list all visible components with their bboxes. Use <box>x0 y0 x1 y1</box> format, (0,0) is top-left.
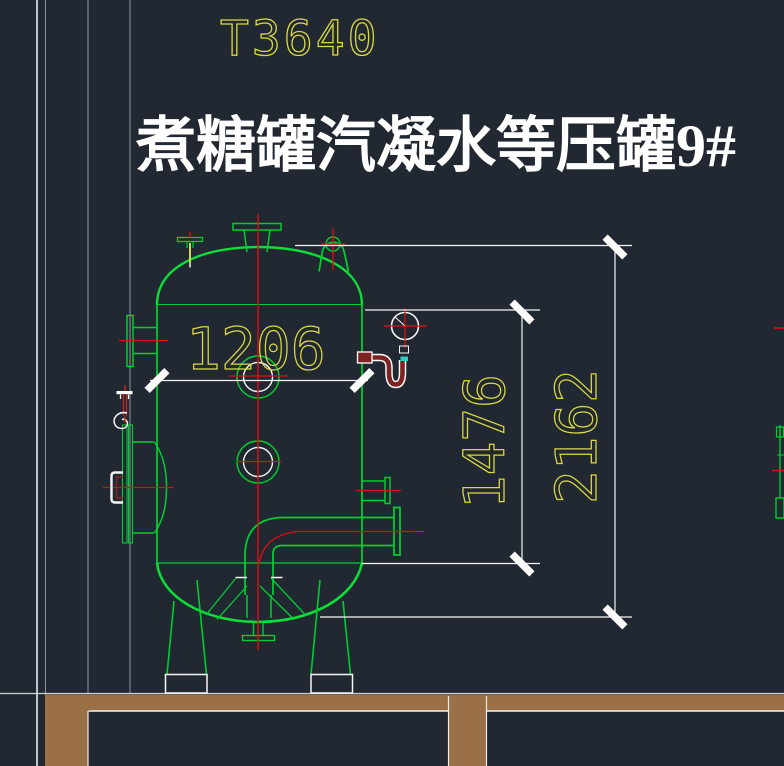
dim-overall-height-text: 2162 <box>545 369 610 504</box>
right-column <box>449 695 487 766</box>
dim-diameter-text: 1206 <box>186 315 326 383</box>
left-column <box>45 695 88 766</box>
drawing-number-label: T3640 <box>220 11 380 67</box>
dim-shell-height-text: 1476 <box>453 374 518 509</box>
cad-viewport[interactable]: T3640 煮糖罐汽凝水等压罐9# 1206 1476 2162 <box>0 0 784 766</box>
title-text: 煮糖罐汽凝水等压罐9# <box>135 113 736 179</box>
